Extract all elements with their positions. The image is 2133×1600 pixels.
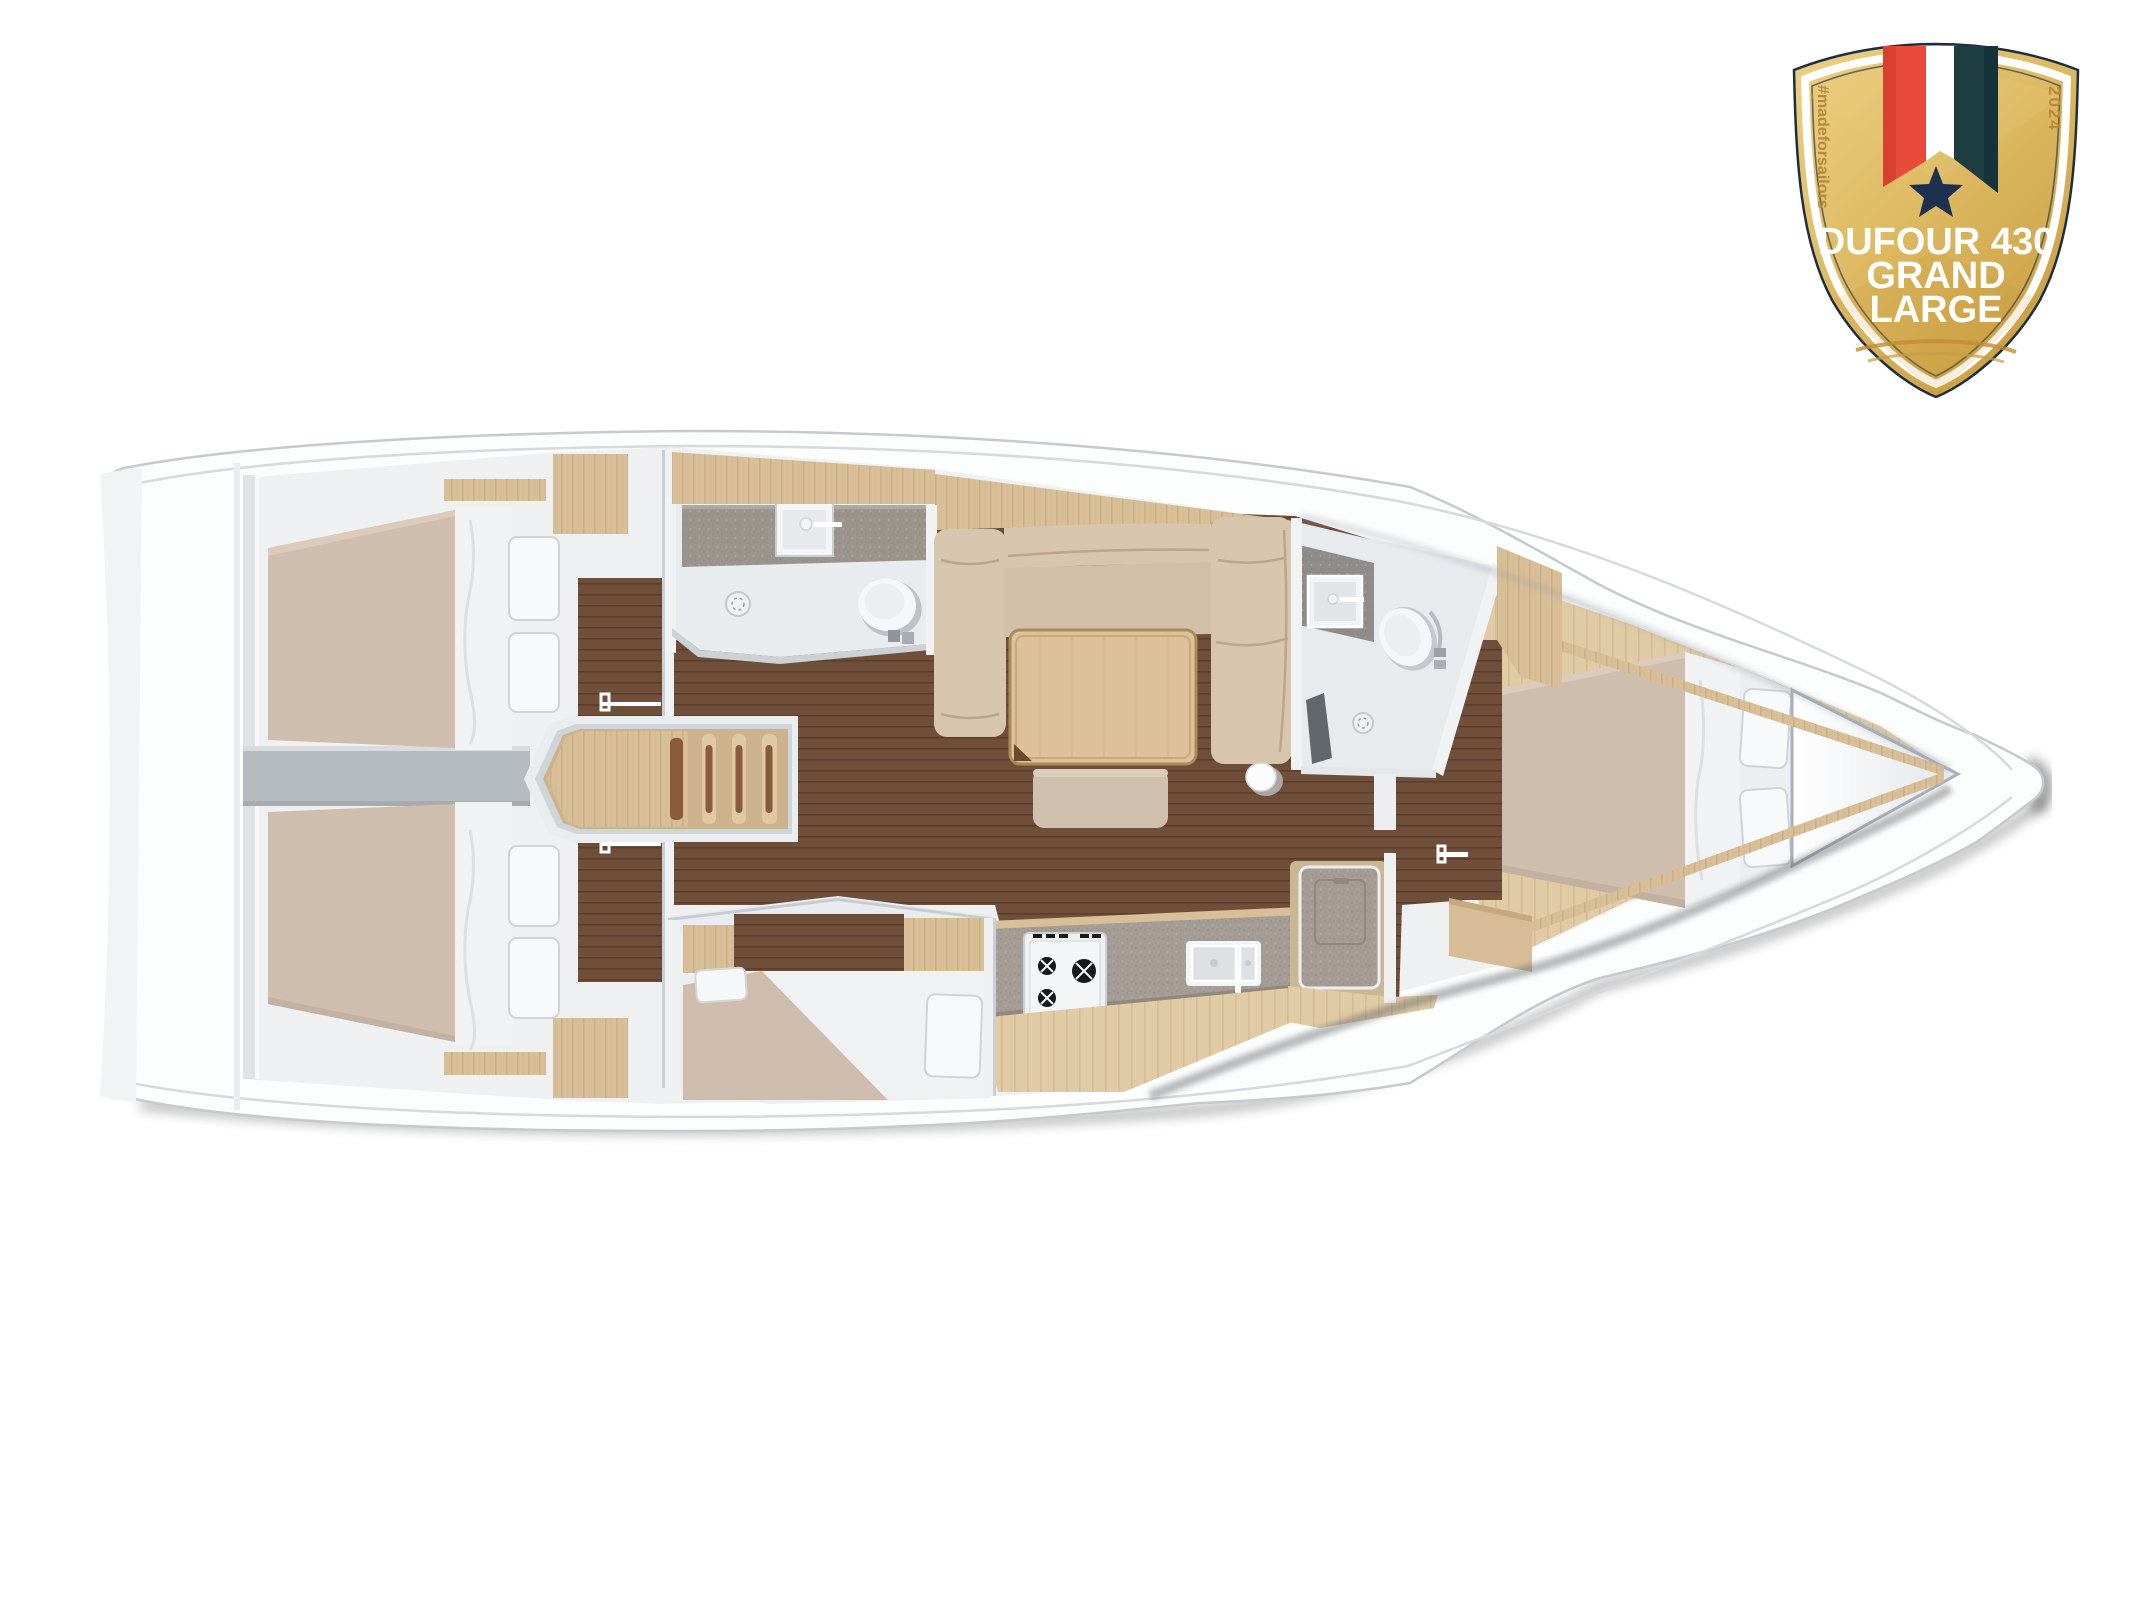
svg-text:LARGE: LARGE — [1870, 289, 2003, 331]
svg-text:2024: 2024 — [2045, 86, 2064, 132]
svg-text:#madeforsailors: #madeforsailors — [1814, 85, 1831, 209]
